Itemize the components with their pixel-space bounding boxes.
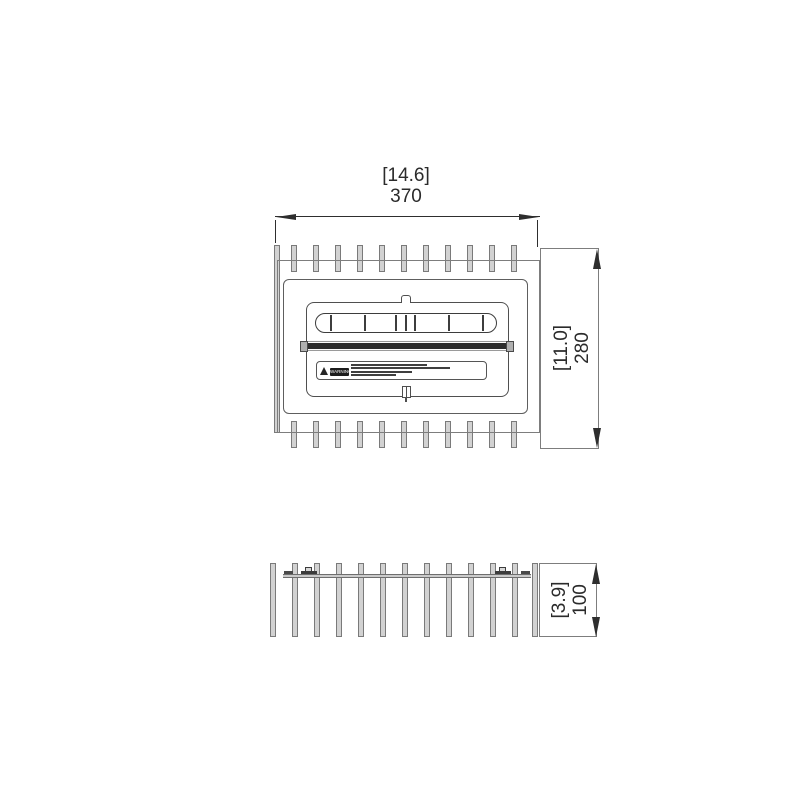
- slot-divider: [414, 315, 417, 332]
- warning-heading-block: WARNING: [330, 368, 349, 376]
- height-dimension-inches: [11.0]: [551, 288, 572, 408]
- slot-divider: [405, 315, 408, 332]
- slot-divider: [395, 315, 398, 332]
- slot-divider: [448, 315, 451, 332]
- housing-midline-upper: [307, 341, 508, 342]
- front-height-inches: [3.9]: [549, 560, 570, 640]
- slot-divider: [364, 315, 367, 332]
- slider-lid-bar: [304, 343, 511, 350]
- extension-line-right: [537, 220, 538, 247]
- slider-handle-midline: [406, 386, 407, 398]
- slot-divider: [330, 315, 333, 332]
- dimension-arrow-up-icon: [593, 249, 601, 269]
- slider-handle-stem: [405, 398, 407, 402]
- rail-clamp-right-bump: [499, 567, 506, 572]
- dimension-arrow-right-icon: [519, 214, 539, 220]
- width-dimension-line: [275, 216, 540, 217]
- top-width-dimension: [14.6] 370: [346, 165, 466, 207]
- technical-drawing-canvas: [14.6] 370 [11.0] 280: [0, 0, 800, 800]
- front-view: [3.9] 100: [0, 500, 800, 800]
- extension-line-left: [275, 220, 276, 243]
- front-rail: [283, 574, 531, 579]
- top-height-dimension: [11.0] 280: [551, 288, 595, 408]
- front-height-dimension: [3.9] 100: [549, 560, 593, 640]
- rail-end-tab-left: [284, 571, 293, 574]
- width-dimension-inches: [14.6]: [346, 165, 466, 186]
- housing-midline-lower: [307, 350, 508, 351]
- warning-text-line: [351, 371, 412, 373]
- slider-tab-right: [506, 341, 514, 352]
- grate-bar: [270, 563, 276, 637]
- warning-triangle-icon: [320, 367, 328, 375]
- slider-tab-left: [300, 341, 308, 352]
- rail-end-tab-right: [521, 571, 530, 574]
- dimension-arrow-left-icon: [276, 214, 296, 220]
- width-dimension-mm: 370: [346, 186, 466, 207]
- warning-text-line: [351, 364, 427, 366]
- warning-text-line: [351, 367, 450, 369]
- housing-top-notch: [401, 295, 411, 303]
- front-height-mm: 100: [570, 560, 591, 640]
- top-view: [14.6] 370 [11.0] 280: [0, 0, 800, 500]
- warning-text-line: [351, 374, 396, 376]
- height-dimension-mm: 280: [572, 288, 593, 408]
- grate-bar: [532, 563, 538, 637]
- dimension-arrow-down-icon: [593, 428, 601, 448]
- slot-divider: [482, 315, 485, 332]
- rail-clamp-left-bump: [305, 567, 312, 572]
